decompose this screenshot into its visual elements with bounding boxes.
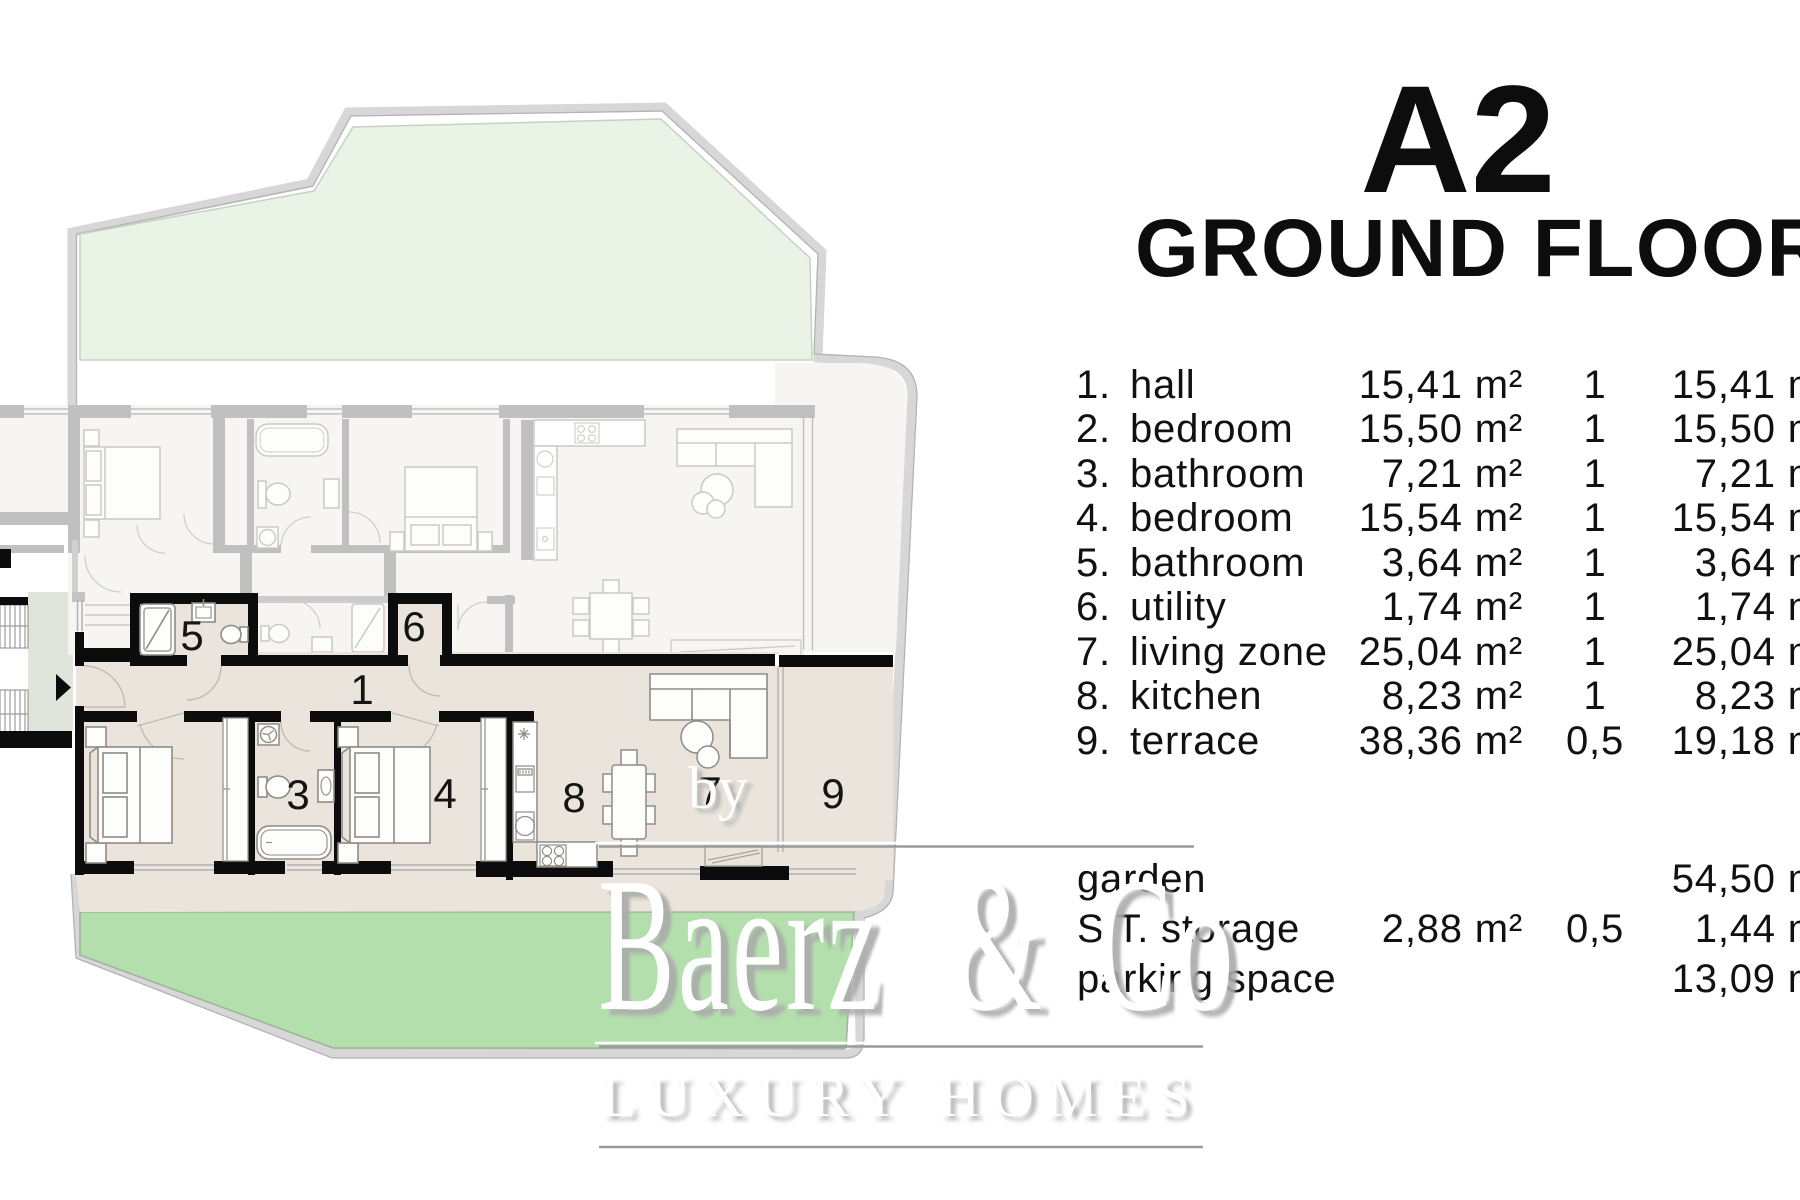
svg-text:A2: A2 (1360, 54, 1556, 225)
svg-text:3: 3 (286, 771, 309, 818)
svg-text:1: 1 (1583, 541, 1606, 585)
svg-text:15,41 m²: 15,41 m² (1672, 363, 1800, 407)
svg-text:bathroom: bathroom (1130, 541, 1305, 585)
svg-text:9.: 9. (1076, 719, 1111, 763)
svg-text:15,50 m²: 15,50 m² (1672, 407, 1800, 451)
svg-text:15,50 m²: 15,50 m² (1359, 407, 1523, 451)
svg-text:19,18 m²: 19,18 m² (1672, 719, 1800, 763)
svg-text:utility: utility (1130, 585, 1227, 629)
svg-text:Baerz&Co: Baerz&Co (598, 839, 1236, 1051)
svg-text:2.: 2. (1076, 407, 1111, 451)
svg-text:LUXURY HOMES: LUXURY HOMES (601, 1066, 1203, 1129)
svg-text:8,23 m²: 8,23 m² (1382, 674, 1523, 718)
svg-text:3,64 m²: 3,64 m² (1695, 541, 1800, 585)
svg-text:8,23 m²: 8,23 m² (1695, 674, 1800, 718)
svg-text:3,64 m²: 3,64 m² (1382, 541, 1523, 585)
svg-text:7.: 7. (1076, 630, 1111, 674)
svg-text:25,04 m²: 25,04 m² (1359, 630, 1523, 674)
svg-text:15,54 m²: 15,54 m² (1359, 496, 1523, 540)
svg-text:living zone: living zone (1130, 630, 1328, 674)
svg-text:54,50 m²: 54,50 m² (1672, 857, 1800, 901)
svg-text:1: 1 (1583, 452, 1606, 496)
svg-text:9: 9 (821, 770, 844, 817)
svg-text:bathroom: bathroom (1130, 452, 1305, 496)
svg-text:8: 8 (562, 774, 585, 821)
svg-text:1: 1 (350, 666, 373, 713)
svg-text:1: 1 (1583, 363, 1606, 407)
svg-text:3.: 3. (1076, 452, 1111, 496)
svg-text:1: 1 (1583, 674, 1606, 718)
svg-text:1: 1 (1583, 496, 1606, 540)
svg-text:15,41 m²: 15,41 m² (1359, 363, 1523, 407)
svg-text:8.: 8. (1076, 674, 1111, 718)
svg-text:4.: 4. (1076, 496, 1111, 540)
svg-text:7,21 m²: 7,21 m² (1695, 452, 1800, 496)
svg-text:bedroom: bedroom (1130, 407, 1293, 451)
svg-text:6: 6 (402, 603, 425, 650)
svg-text:bedroom: bedroom (1130, 496, 1293, 540)
svg-text:4: 4 (433, 770, 456, 817)
svg-text:5: 5 (180, 612, 203, 659)
svg-text:1: 1 (1583, 585, 1606, 629)
svg-text:by: by (688, 755, 748, 821)
svg-text:2,88 m²: 2,88 m² (1382, 907, 1523, 951)
svg-text:38,36 m²: 38,36 m² (1359, 719, 1523, 763)
svg-text:hall: hall (1130, 363, 1195, 407)
svg-text:1: 1 (1583, 407, 1606, 451)
svg-text:5.: 5. (1076, 541, 1111, 585)
svg-text:6.: 6. (1076, 585, 1111, 629)
svg-text:0,5: 0,5 (1566, 719, 1624, 763)
svg-text:terrace: terrace (1130, 719, 1260, 763)
svg-text:1,44 m²: 1,44 m² (1695, 907, 1800, 951)
svg-text:1.: 1. (1076, 363, 1111, 407)
svg-text:15,54 m²: 15,54 m² (1672, 496, 1800, 540)
svg-text:13,09 m²: 13,09 m² (1672, 957, 1800, 1001)
svg-text:0,5: 0,5 (1566, 907, 1624, 951)
svg-text:1: 1 (1583, 630, 1606, 674)
svg-text:25,04 m²: 25,04 m² (1672, 630, 1800, 674)
svg-text:1,74 m²: 1,74 m² (1382, 585, 1523, 629)
svg-text:7,21 m²: 7,21 m² (1382, 452, 1523, 496)
svg-text:1,74 m²: 1,74 m² (1695, 585, 1800, 629)
svg-text:kitchen: kitchen (1130, 674, 1262, 718)
svg-text:GROUND FLOOR: GROUND FLOOR (1135, 203, 1800, 294)
